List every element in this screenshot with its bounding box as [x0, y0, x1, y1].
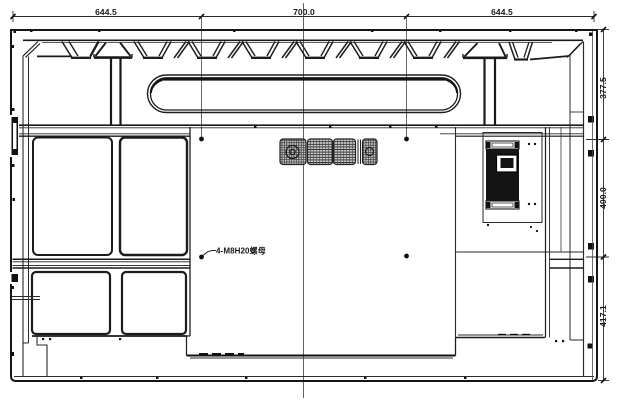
svg-text:377.5: 377.5 [598, 77, 608, 99]
svg-text:417.1: 417.1 [598, 305, 608, 327]
svg-text:644.5: 644.5 [95, 7, 117, 17]
svg-text:700.0: 700.0 [293, 7, 315, 17]
svg-text:4-M8H20螺母: 4-M8H20螺母 [216, 246, 266, 256]
svg-text:644.5: 644.5 [491, 7, 513, 17]
svg-text:400.0: 400.0 [598, 187, 608, 209]
